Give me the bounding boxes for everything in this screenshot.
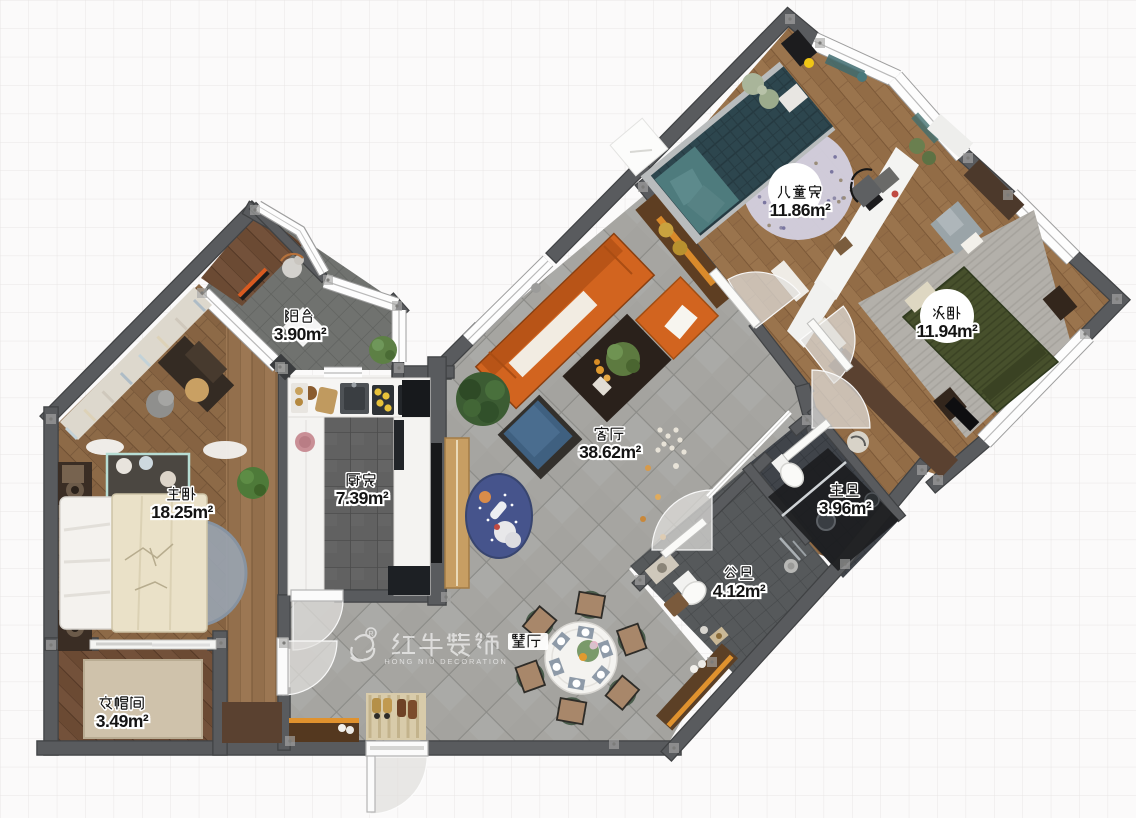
- svg-text:3.49m²: 3.49m²: [96, 711, 149, 731]
- svg-text:18.25m²: 18.25m²: [151, 502, 213, 522]
- svg-text:38.62m²: 38.62m²: [579, 442, 641, 462]
- svg-text:3.96m²: 3.96m²: [819, 498, 872, 518]
- svg-text:3.90m²: 3.90m²: [274, 324, 327, 344]
- svg-text:11.94m²: 11.94m²: [917, 321, 978, 341]
- svg-text:HONG NIU DECORATION: HONG NIU DECORATION: [384, 657, 507, 666]
- svg-text:7.39m²: 7.39m²: [336, 488, 389, 508]
- svg-text:11.86m²: 11.86m²: [770, 200, 831, 220]
- svg-text:4.12m²: 4.12m²: [713, 581, 766, 601]
- svg-text:R: R: [368, 631, 373, 638]
